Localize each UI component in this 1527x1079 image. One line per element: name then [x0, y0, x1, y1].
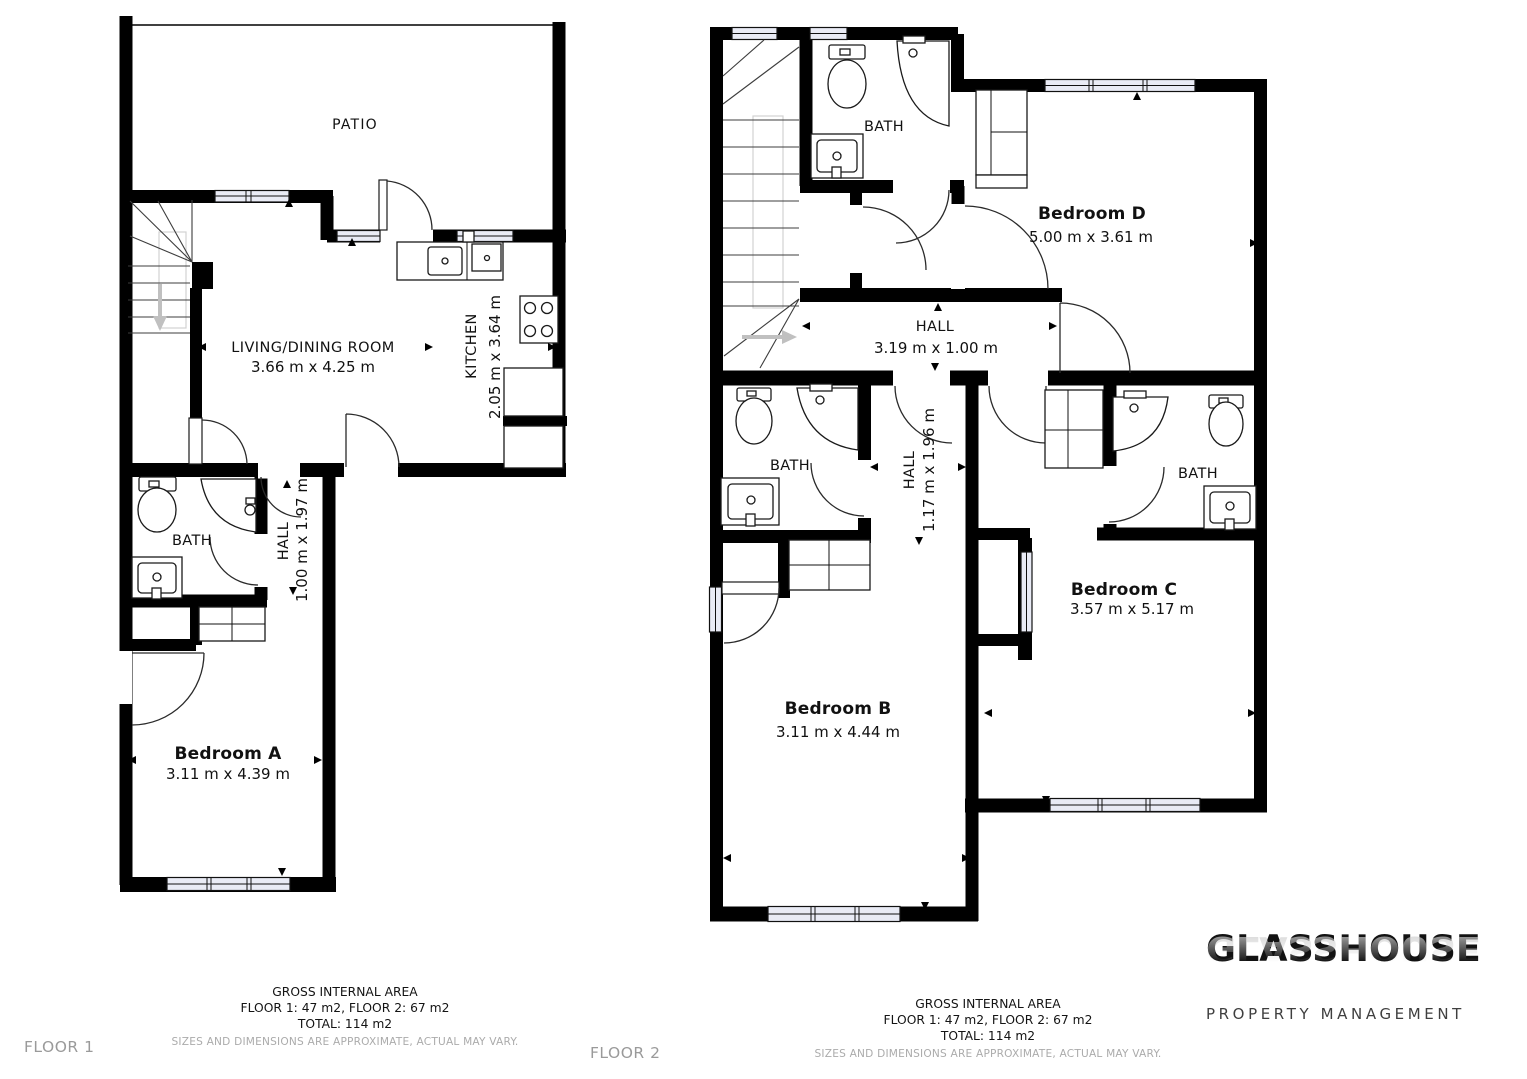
bedroom-b-label: Bedroom B — [785, 699, 892, 719]
kitchen-counter-divider-wall — [503, 416, 567, 426]
bedroom-c-label: Bedroom C — [1071, 580, 1177, 600]
sink-icon — [721, 478, 779, 526]
door — [132, 653, 204, 725]
door — [965, 206, 1048, 289]
bath-label: BATH — [172, 533, 212, 549]
hall-inner-label: HALL — [902, 451, 918, 490]
stairs-icon — [128, 200, 192, 333]
door — [189, 418, 247, 464]
total-area-line: TOTAL: 114 m2 — [788, 1028, 1188, 1044]
sink-icon — [132, 557, 182, 599]
shower-icon — [797, 384, 858, 450]
floor1-area-summary: GROSS INTERNAL AREA FLOOR 1: 47 m2, FLOO… — [145, 984, 545, 1050]
floor2-tag: FLOOR 2 — [590, 1044, 660, 1062]
disclaimer-text: SIZES AND DIMENSIONS ARE APPROXIMATE, AC… — [788, 1046, 1188, 1062]
sink-icon — [811, 134, 863, 178]
window — [810, 28, 847, 40]
toilet-icon — [138, 477, 176, 532]
door — [989, 386, 1046, 443]
bath-top-label: BATH — [864, 119, 904, 135]
floor1-windows — [167, 191, 513, 891]
bedroom-a-label: Bedroom A — [175, 744, 283, 764]
glasshouse-logo: GLASSHOUSE GLASSHOUSE PROPERTY MANAGEMEN… — [1206, 929, 1496, 1023]
sink-icon — [1204, 486, 1256, 530]
stove-icon — [520, 296, 558, 343]
logo-reflection: GLASSHOUSE — [1206, 935, 1496, 969]
stair-newel-wall — [192, 262, 213, 289]
bath-left-label: BATH — [770, 458, 810, 474]
gross-area-title: GROSS INTERNAL AREA — [145, 984, 545, 1000]
wardrobe-icon — [789, 540, 870, 590]
patio-label: PATIO — [332, 117, 378, 133]
window — [768, 907, 900, 922]
window — [1045, 80, 1195, 92]
bedroom-a-dims: 3.11 m x 4.39 m — [166, 765, 290, 783]
door — [722, 582, 779, 643]
bedroom-b-dims: 3.11 m x 4.44 m — [776, 723, 900, 741]
door — [379, 180, 432, 230]
floor1-plan: PATIO LIVING/DINING ROOM 3.66 m x 4.25 m… — [118, 16, 567, 891]
bedroom-d-dims: 5.00 m x 3.61 m — [1029, 228, 1153, 246]
window — [732, 28, 777, 40]
shower-icon — [201, 479, 256, 532]
toilet-icon — [736, 388, 772, 444]
door — [811, 463, 864, 516]
window — [1050, 799, 1200, 812]
floor2-area-summary: GROSS INTERNAL AREA FLOOR 1: 47 m2, FLOO… — [788, 996, 1188, 1062]
toilet-icon — [1209, 395, 1243, 446]
hall2-dims: 3.19 m x 1.00 m — [874, 339, 998, 357]
hall-inner-dims: 1.17 m x 1.96 m — [920, 408, 938, 532]
sofa-icon — [976, 90, 1027, 188]
living-dining-dims: 3.66 m x 4.25 m — [251, 358, 375, 376]
window — [1021, 552, 1032, 632]
window — [167, 878, 290, 891]
dimension-arrows — [723, 92, 1258, 910]
living-dining-label: LIVING/DINING ROOM — [231, 340, 394, 356]
shower-icon — [897, 36, 949, 126]
door — [896, 190, 949, 243]
window — [710, 587, 722, 632]
stairs-icon — [723, 40, 799, 368]
total-area-line: TOTAL: 114 m2 — [145, 1016, 545, 1032]
hall-dims: 1.00 m x 1.97 m — [293, 478, 311, 602]
floors-area-line: FLOOR 1: 47 m2, FLOOR 2: 67 m2 — [788, 1012, 1188, 1028]
window — [215, 191, 289, 203]
door — [1060, 303, 1130, 373]
disclaimer-text: SIZES AND DIMENSIONS ARE APPROXIMATE, AC… — [145, 1034, 545, 1050]
bedroom-c-dims: 3.57 m x 5.17 m — [1070, 600, 1194, 618]
shower-icon — [1113, 391, 1168, 451]
toilet-icon — [828, 45, 866, 108]
logo-subtitle: PROPERTY MANAGEMENT — [1206, 1005, 1496, 1023]
door — [346, 414, 399, 467]
floorplan-canvas: PATIO LIVING/DINING ROOM 3.66 m x 4.25 m… — [0, 0, 1527, 1079]
hall-label: HALL — [276, 522, 292, 561]
floor2-plan: BATH Bedroom D 5.00 m x 3.61 m HALL 3.19… — [710, 28, 1268, 922]
wardrobe-icon — [199, 607, 265, 641]
kitchen-label: KITCHEN — [464, 313, 480, 379]
floor1-tag: FLOOR 1 — [24, 1038, 94, 1056]
bath-right-label: BATH — [1178, 466, 1218, 482]
kitchen-dims: 2.05 m x 3.64 m — [486, 295, 504, 419]
door — [210, 537, 258, 585]
bedroom-d-label: Bedroom D — [1038, 204, 1146, 224]
void-wall — [967, 634, 1030, 646]
hall2-label: HALL — [916, 319, 955, 335]
floors-area-line: FLOOR 1: 47 m2, FLOOR 2: 67 m2 — [145, 1000, 545, 1016]
window — [337, 231, 380, 242]
gross-area-title: GROSS INTERNAL AREA — [788, 996, 1188, 1012]
wardrobe-icon — [1045, 390, 1103, 468]
